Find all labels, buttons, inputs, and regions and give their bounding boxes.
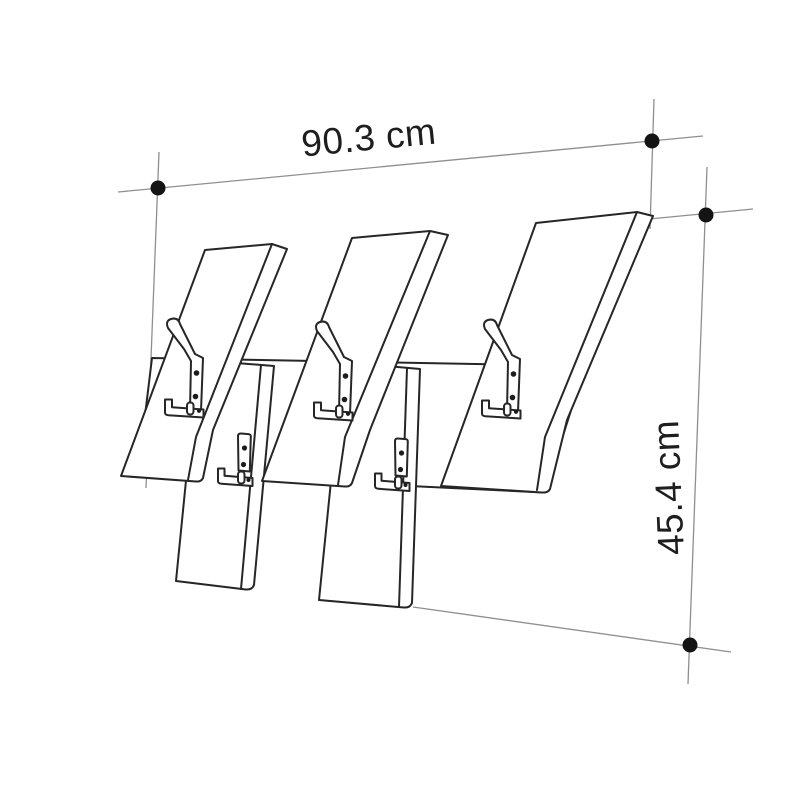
height-dimension-line (688, 167, 707, 684)
dimension-marker-dot-top-left (151, 181, 166, 196)
coat-rack-dimension-diagram: 90.3 cm 45.4 cm (0, 0, 800, 800)
height-dimension-label: 45.4 cm (645, 419, 692, 556)
coat-rack-drawing (121, 212, 653, 608)
diagram-canvas: 90.3 cm 45.4 cm (0, 0, 800, 800)
width-dimension-label: 90.3 cm (300, 111, 438, 165)
dimension-marker-dot-right-upper (699, 208, 714, 223)
dimension-marker-dot-right-lower (683, 638, 698, 653)
dimension-marker-dot-top-right (645, 134, 660, 149)
upper-panel-3 (441, 212, 653, 493)
extension-line-top-right (650, 99, 654, 229)
